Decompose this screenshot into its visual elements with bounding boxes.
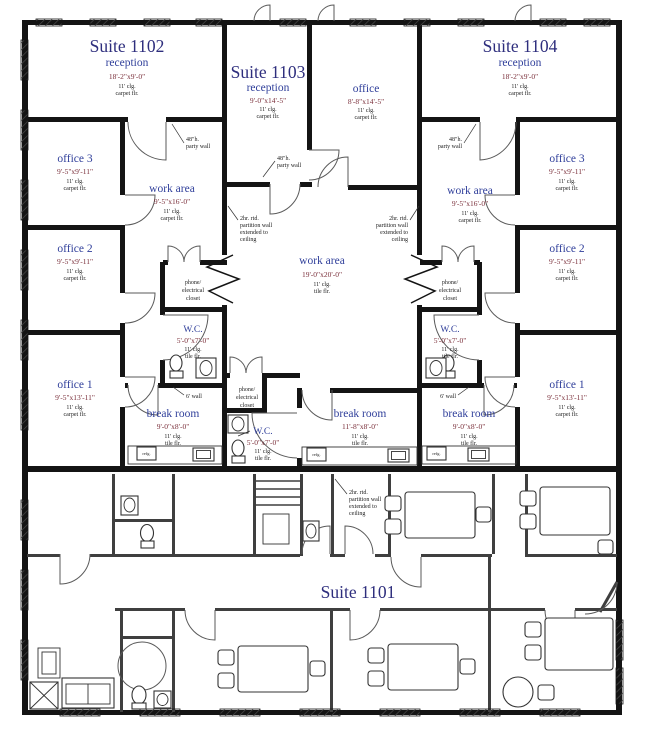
svg-text:carpet flr.: carpet flr. xyxy=(556,185,579,192)
svg-text:11' clg.: 11' clg. xyxy=(259,107,277,113)
svg-text:19'-0"x20'-0": 19'-0"x20'-0" xyxy=(302,270,342,279)
room-1104-closet-label: phone/ xyxy=(442,280,459,286)
suite-1101-title: Suite 1101 xyxy=(321,582,396,602)
six-wall-note-1104: 6' wall xyxy=(440,394,456,400)
room-1102-reception-name: reception xyxy=(106,57,149,69)
svg-text:18'-2"x9'-0": 18'-2"x9'-0" xyxy=(502,72,538,81)
svg-text:9'-5"x13'-11": 9'-5"x13'-11" xyxy=(547,393,587,402)
svg-text:11' clg.: 11' clg. xyxy=(313,282,331,288)
svg-text:closet: closet xyxy=(240,403,254,409)
svg-text:9'-5"x9'-11": 9'-5"x9'-11" xyxy=(57,167,93,176)
six-wall-note-1102: 6' wall xyxy=(186,394,202,400)
svg-text:tile flr.: tile flr. xyxy=(442,353,458,360)
svg-text:closet: closet xyxy=(186,296,200,302)
svg-text:11' clg.: 11' clg. xyxy=(351,434,369,440)
svg-text:11' clg.: 11' clg. xyxy=(511,84,529,90)
svg-text:electrical: electrical xyxy=(236,395,258,401)
room-1102-office1-name: office 1 xyxy=(57,379,92,391)
svg-text:carpet flr.: carpet flr. xyxy=(161,215,184,222)
svg-text:tile flr.: tile flr. xyxy=(165,440,181,447)
svg-text:11' clg.: 11' clg. xyxy=(357,108,375,114)
room-1104-break-name: break room xyxy=(443,408,496,420)
svg-text:8'-8"x14'-5": 8'-8"x14'-5" xyxy=(348,97,384,106)
svg-text:11' clg.: 11' clg. xyxy=(441,347,459,353)
suite-1104-title: Suite 1104 xyxy=(483,36,558,56)
svg-text:11' clg.: 11' clg. xyxy=(558,269,576,275)
labels: Suite 1102 reception 18'-2"x9'-0" 11' cl… xyxy=(55,36,587,602)
room-1104-wc-name: W.C. xyxy=(440,325,459,335)
svg-text:tile flr.: tile flr. xyxy=(185,353,201,360)
floor-plan: Suite 1102 reception 18'-2"x9'-0" 11' cl… xyxy=(0,0,648,733)
svg-text:11'-8"x8'-0": 11'-8"x8'-0" xyxy=(342,422,378,431)
partition-note-left: 2hr. rtd. xyxy=(240,216,259,222)
svg-text:tile flr.: tile flr. xyxy=(352,440,368,447)
svg-text:ceiling: ceiling xyxy=(392,237,408,243)
svg-text:ceiling: ceiling xyxy=(349,511,365,517)
svg-text:11' clg.: 11' clg. xyxy=(460,434,478,440)
svg-text:5'-0"x7'-0": 5'-0"x7'-0" xyxy=(434,336,467,345)
svg-text:9'-5"x9'-11": 9'-5"x9'-11" xyxy=(57,257,93,266)
fridge-label-1104: refg. xyxy=(432,451,440,456)
svg-text:tile flr.: tile flr. xyxy=(461,440,477,447)
room-1103-closet-label: phone/ xyxy=(239,387,256,393)
svg-text:11' clg.: 11' clg. xyxy=(163,209,181,215)
svg-text:9'-0"x8'-0": 9'-0"x8'-0" xyxy=(157,422,190,431)
svg-text:partition wall: partition wall xyxy=(376,223,408,229)
room-1102-closet-label: phone/ xyxy=(185,280,202,286)
svg-text:carpet flr.: carpet flr. xyxy=(64,185,87,192)
svg-text:party wall: party wall xyxy=(186,144,210,150)
svg-text:carpet flr.: carpet flr. xyxy=(257,113,280,120)
svg-text:carpet flr.: carpet flr. xyxy=(459,217,482,224)
svg-text:closet: closet xyxy=(443,296,457,302)
suite-1102-title: Suite 1102 xyxy=(90,36,165,56)
svg-text:partition wall: partition wall xyxy=(240,223,272,229)
svg-text:9'-0"x8'-0": 9'-0"x8'-0" xyxy=(453,422,486,431)
svg-text:carpet flr.: carpet flr. xyxy=(509,90,532,97)
party-wall-note-1104: 48"h. xyxy=(449,137,462,143)
svg-text:11' clg.: 11' clg. xyxy=(461,211,479,217)
suite-1103-title: Suite 1103 xyxy=(231,62,306,82)
svg-text:9'-5"x13'-11": 9'-5"x13'-11" xyxy=(55,393,95,402)
fridge-label-1102: refg. xyxy=(142,451,150,456)
svg-text:partition wall: partition wall xyxy=(349,497,381,503)
room-1103-office-name: office xyxy=(353,83,380,95)
room-1103-work-name: work area xyxy=(299,255,345,267)
room-1104-office2-name: office 2 xyxy=(549,243,584,255)
room-1104-reception-name: reception xyxy=(499,57,542,69)
room-1102-office2-name: office 2 xyxy=(57,243,92,255)
svg-text:carpet flr.: carpet flr. xyxy=(116,90,139,97)
room-1102-reception-dims: 18'-2"x9'-0" xyxy=(109,72,145,81)
svg-text:extended to: extended to xyxy=(349,504,377,510)
svg-text:extended to: extended to xyxy=(240,230,268,236)
svg-text:tile flr.: tile flr. xyxy=(314,288,330,295)
svg-text:11' clg.: 11' clg. xyxy=(254,449,272,455)
room-1103-break-name: break room xyxy=(334,408,387,420)
svg-text:11' clg.: 11' clg. xyxy=(66,405,84,411)
partition-note-1101: 2hr. rtd. xyxy=(349,490,368,496)
svg-text:party wall: party wall xyxy=(438,144,462,150)
svg-text:9'-0"x14'-5": 9'-0"x14'-5" xyxy=(250,96,286,105)
svg-text:5'-0"x7'-0": 5'-0"x7'-0" xyxy=(177,336,210,345)
fridge-label-1103: refg. xyxy=(312,452,320,457)
room-1102-work-name: work area xyxy=(149,183,195,195)
partition-note-right: 2hr. rtd. xyxy=(389,216,408,222)
svg-text:carpet flr.: carpet flr. xyxy=(64,411,87,418)
svg-text:9'-5"x9'-11": 9'-5"x9'-11" xyxy=(549,257,585,266)
svg-text:9'-5"x9'-11": 9'-5"x9'-11" xyxy=(549,167,585,176)
party-wall-note-1103: 48"h. xyxy=(277,156,290,162)
room-1103-wc-name: W.C. xyxy=(253,427,272,437)
svg-text:carpet flr.: carpet flr. xyxy=(355,114,378,121)
room-1102-break-name: break room xyxy=(147,408,200,420)
room-1103-reception-name: reception xyxy=(247,82,290,94)
svg-text:11' clg.: 11' clg. xyxy=(118,84,136,90)
svg-text:electrical: electrical xyxy=(439,288,461,294)
svg-text:11' clg.: 11' clg. xyxy=(66,179,84,185)
svg-text:tile flr.: tile flr. xyxy=(255,455,271,462)
room-1102-office3-name: office 3 xyxy=(57,153,92,165)
svg-text:11' clg.: 11' clg. xyxy=(558,405,576,411)
svg-text:11' clg.: 11' clg. xyxy=(66,269,84,275)
party-wall-note-1102: 48"h. xyxy=(186,137,199,143)
windows xyxy=(21,19,623,716)
svg-text:11' clg.: 11' clg. xyxy=(558,179,576,185)
svg-text:11' clg.: 11' clg. xyxy=(184,347,202,353)
svg-text:11' clg.: 11' clg. xyxy=(164,434,182,440)
floor-plan-svg: Suite 1102 reception 18'-2"x9'-0" 11' cl… xyxy=(0,0,648,733)
svg-text:electrical: electrical xyxy=(182,288,204,294)
svg-text:carpet flr.: carpet flr. xyxy=(556,411,579,418)
room-1104-work-name: work area xyxy=(447,185,493,197)
svg-text:carpet flr.: carpet flr. xyxy=(556,275,579,282)
svg-text:ceiling: ceiling xyxy=(240,237,256,243)
room-1104-office3-name: office 3 xyxy=(549,153,584,165)
svg-text:carpet flr.: carpet flr. xyxy=(64,275,87,282)
svg-text:party wall: party wall xyxy=(277,163,301,169)
svg-text:9'-5"x16'-0": 9'-5"x16'-0" xyxy=(154,197,190,206)
room-1102-wc-name: W.C. xyxy=(183,325,202,335)
svg-text:9'-5"x16'-0": 9'-5"x16'-0" xyxy=(452,199,488,208)
room-1104-office1-name: office 1 xyxy=(549,379,584,391)
svg-text:extended to: extended to xyxy=(380,230,408,236)
svg-text:5'-0"x7'-0": 5'-0"x7'-0" xyxy=(247,438,280,447)
